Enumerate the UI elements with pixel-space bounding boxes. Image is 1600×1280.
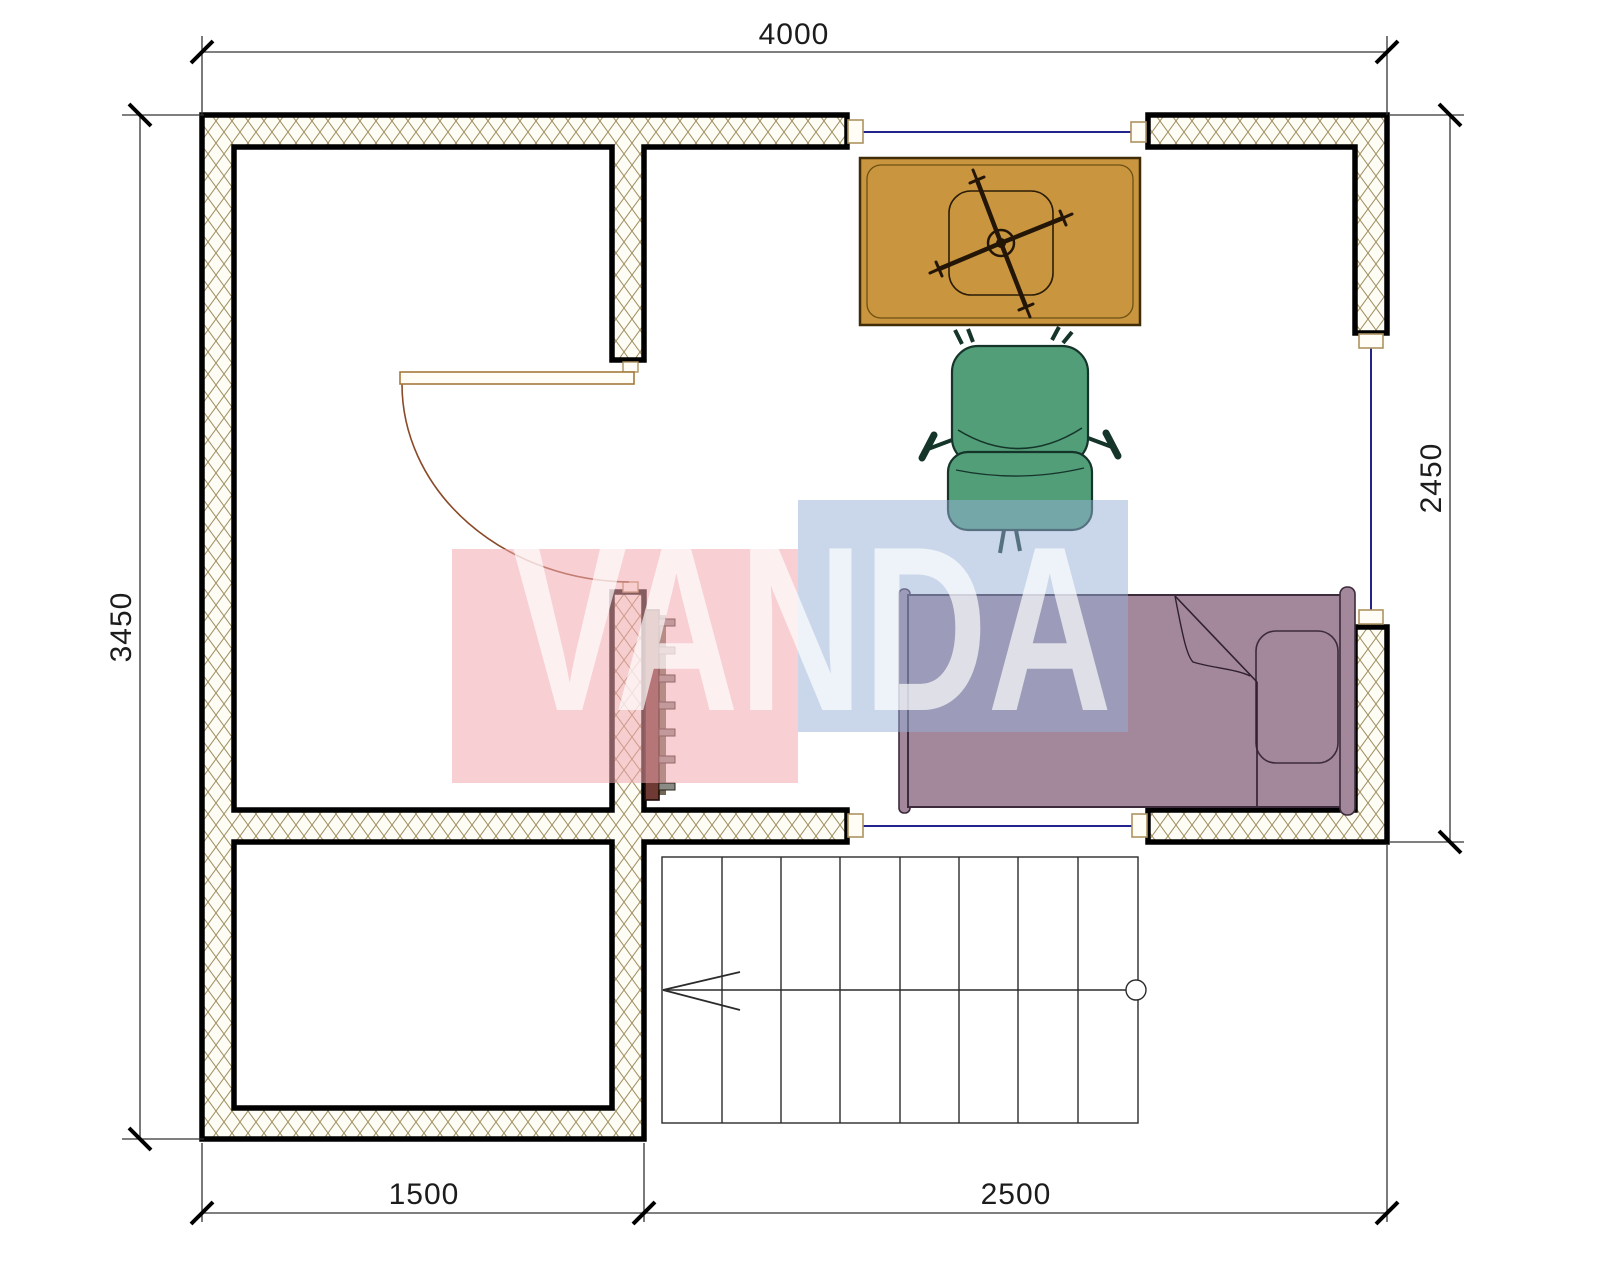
dim-left-label: 3450: [105, 592, 138, 663]
window-jamb: [848, 814, 863, 837]
dim-bottom-right-label: 2500: [981, 1178, 1052, 1211]
window-jamb: [1359, 610, 1383, 624]
dim-right-label: 2450: [1415, 443, 1448, 514]
desk: [860, 158, 1140, 325]
bed-pillow: [1256, 631, 1338, 763]
dim-top-label: 4000: [759, 18, 830, 51]
armchair-seat: [952, 346, 1088, 464]
door-leaf: [400, 372, 634, 384]
watermark-text: VANDA: [512, 497, 1112, 760]
stairs: [662, 857, 1146, 1123]
door-jamb: [623, 362, 638, 372]
window-jamb: [1132, 814, 1147, 837]
window-jamb: [1359, 334, 1383, 348]
bed-headboard: [1340, 587, 1355, 815]
watermark: VANDA: [452, 497, 1128, 783]
window-jamb: [1131, 122, 1146, 142]
window-jamb: [848, 120, 863, 143]
desk-chair-base-pin: [996, 238, 1006, 248]
stairs-walkline-start: [1126, 980, 1146, 1000]
wall-top-right-corner: [1148, 115, 1387, 333]
floor-plan-canvas: 4000 3450 2450 1500 2500 VANDA: [0, 0, 1600, 1280]
floor-plan-drawing: 4000 3450 2450 1500 2500 VANDA: [0, 0, 1600, 1280]
dim-bottom-left-label: 1500: [389, 1178, 460, 1211]
